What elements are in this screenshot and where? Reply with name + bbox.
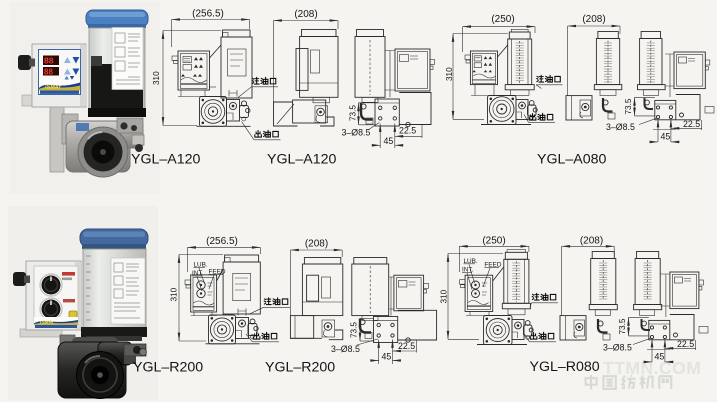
svg-text:3–Ø8.5: 3–Ø8.5 xyxy=(603,343,632,353)
svg-text:YGL–A080: YGL–A080 xyxy=(537,152,607,168)
svg-text:(208): (208) xyxy=(582,14,605,25)
svg-text:(208): (208) xyxy=(305,239,328,250)
svg-text:310: 310 xyxy=(445,67,454,81)
svg-text:3–Ø8.5: 3–Ø8.5 xyxy=(606,122,635,132)
svg-text:22.5: 22.5 xyxy=(683,119,700,129)
svg-text:88: 88 xyxy=(44,68,53,77)
svg-text:(208): (208) xyxy=(294,9,317,20)
svg-text:73.5: 73.5 xyxy=(618,318,627,334)
svg-text:310: 310 xyxy=(170,287,179,301)
svg-text:YGL–A120: YGL–A120 xyxy=(131,152,201,168)
svg-text:(250): (250) xyxy=(482,236,505,247)
svg-text:45: 45 xyxy=(661,132,671,142)
svg-text:73.5: 73.5 xyxy=(350,322,359,338)
svg-text:310: 310 xyxy=(152,71,161,85)
svg-text:iSMAr: iSMAr xyxy=(40,320,55,326)
svg-text:3–Ø8.5: 3–Ø8.5 xyxy=(331,344,360,354)
svg-text:45: 45 xyxy=(382,352,392,362)
svg-text:(250): (250) xyxy=(491,14,514,25)
svg-text:(208): (208) xyxy=(580,236,603,247)
svg-text:73.5: 73.5 xyxy=(349,105,358,121)
svg-text:YGL–R080: YGL–R080 xyxy=(530,359,600,375)
svg-text:73.5: 73.5 xyxy=(624,98,633,114)
svg-text:22.5: 22.5 xyxy=(677,339,694,349)
svg-text:YGL–A120: YGL–A120 xyxy=(267,152,337,168)
svg-text:(256.5): (256.5) xyxy=(206,236,238,247)
svg-text:YGL–R200: YGL–R200 xyxy=(265,360,335,376)
svg-text:45: 45 xyxy=(384,136,394,146)
svg-text:22.5: 22.5 xyxy=(399,126,416,136)
svg-text:YGL–R200: YGL–R200 xyxy=(133,360,203,376)
svg-text:22.5: 22.5 xyxy=(398,341,415,351)
svg-text:(256.5): (256.5) xyxy=(192,9,224,20)
svg-text:88: 88 xyxy=(44,56,54,66)
svg-text:45: 45 xyxy=(655,352,665,362)
svg-text:310: 310 xyxy=(440,289,449,303)
svg-text:3–Ø8.5: 3–Ø8.5 xyxy=(342,128,371,138)
svg-text:iSMAr: iSMAr xyxy=(45,85,62,91)
